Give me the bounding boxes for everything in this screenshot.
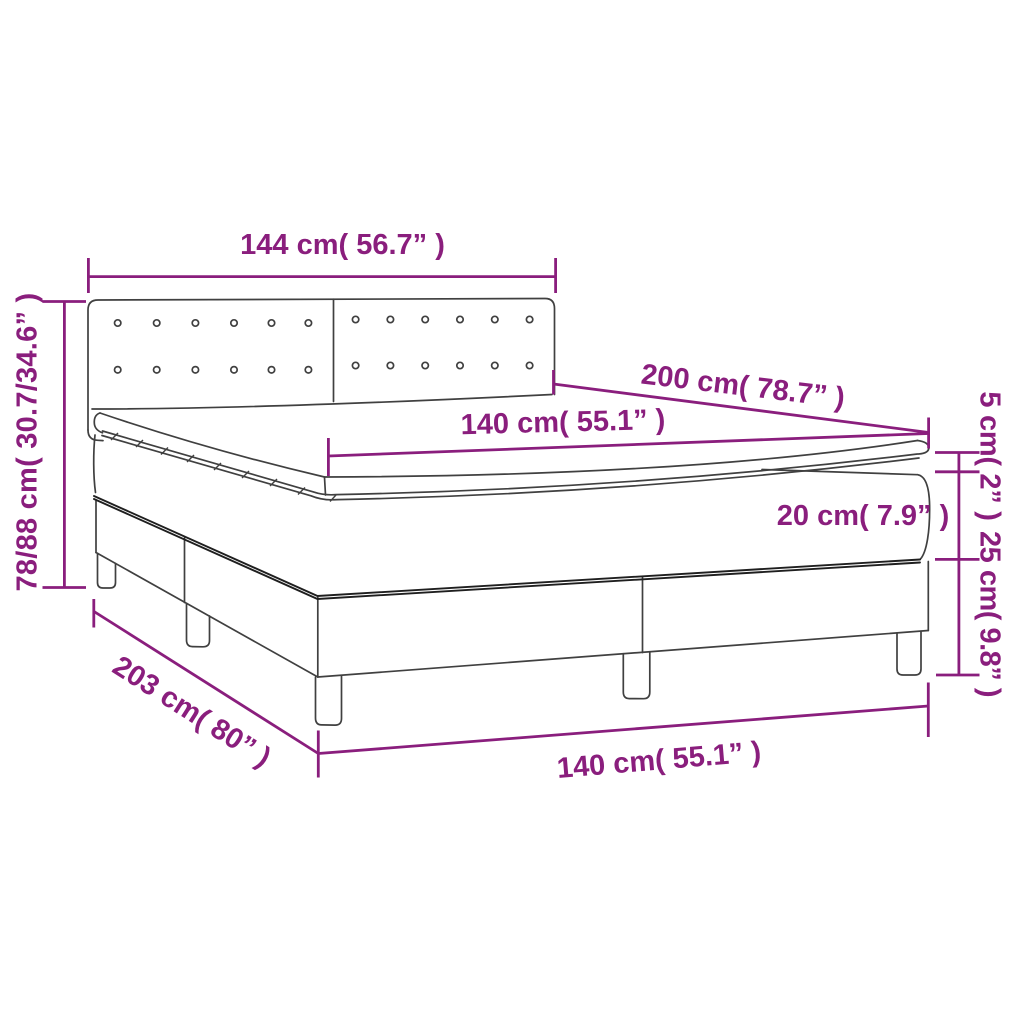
svg-text:25 cm( 9.8” ): 25 cm( 9.8” ) <box>974 531 1006 697</box>
svg-text:144 cm( 56.7” ): 144 cm( 56.7” ) <box>240 229 445 261</box>
svg-text:78/88 cm( 30.7/34.6” ): 78/88 cm( 30.7/34.6” ) <box>12 293 44 592</box>
svg-text:5 cm( 2” ): 5 cm( 2” ) <box>974 391 1006 520</box>
svg-text:20 cm( 7.9” ): 20 cm( 7.9” ) <box>777 500 949 532</box>
svg-text:140 cm( 55.1” ): 140 cm( 55.1” ) <box>460 404 666 441</box>
